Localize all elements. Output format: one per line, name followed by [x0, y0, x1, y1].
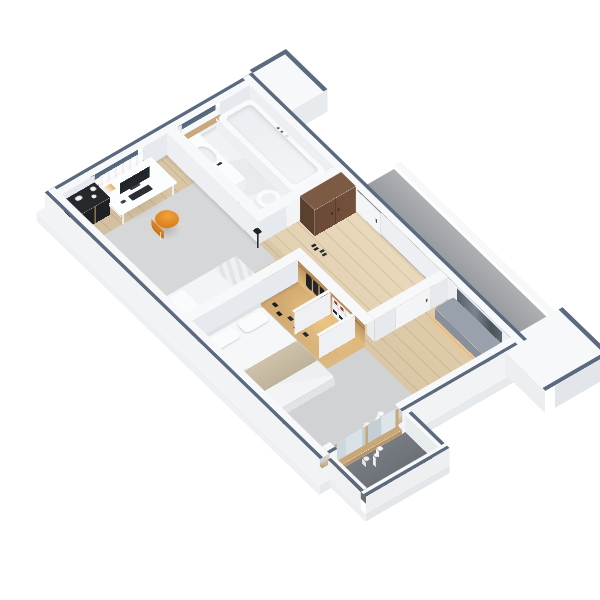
shoe-pair — [272, 302, 279, 307]
cabinet-handle-icon — [338, 208, 340, 212]
shoe-pair — [276, 311, 283, 316]
red-shoes — [340, 306, 343, 312]
shoe — [313, 247, 319, 251]
hanging-clothes — [306, 273, 312, 292]
bedroom-door-handle-icon — [426, 298, 428, 302]
shoe-pair — [287, 316, 294, 321]
dark-shoes — [333, 309, 337, 315]
cabinet-seam — [335, 198, 336, 225]
red-shoes — [334, 300, 337, 306]
entry-door-handle-icon — [376, 218, 377, 223]
shoe-pair — [302, 332, 309, 337]
floor-plan-render — [0, 0, 600, 600]
cabinet-handle-icon — [331, 212, 333, 216]
apartment-plan — [45, 95, 527, 482]
